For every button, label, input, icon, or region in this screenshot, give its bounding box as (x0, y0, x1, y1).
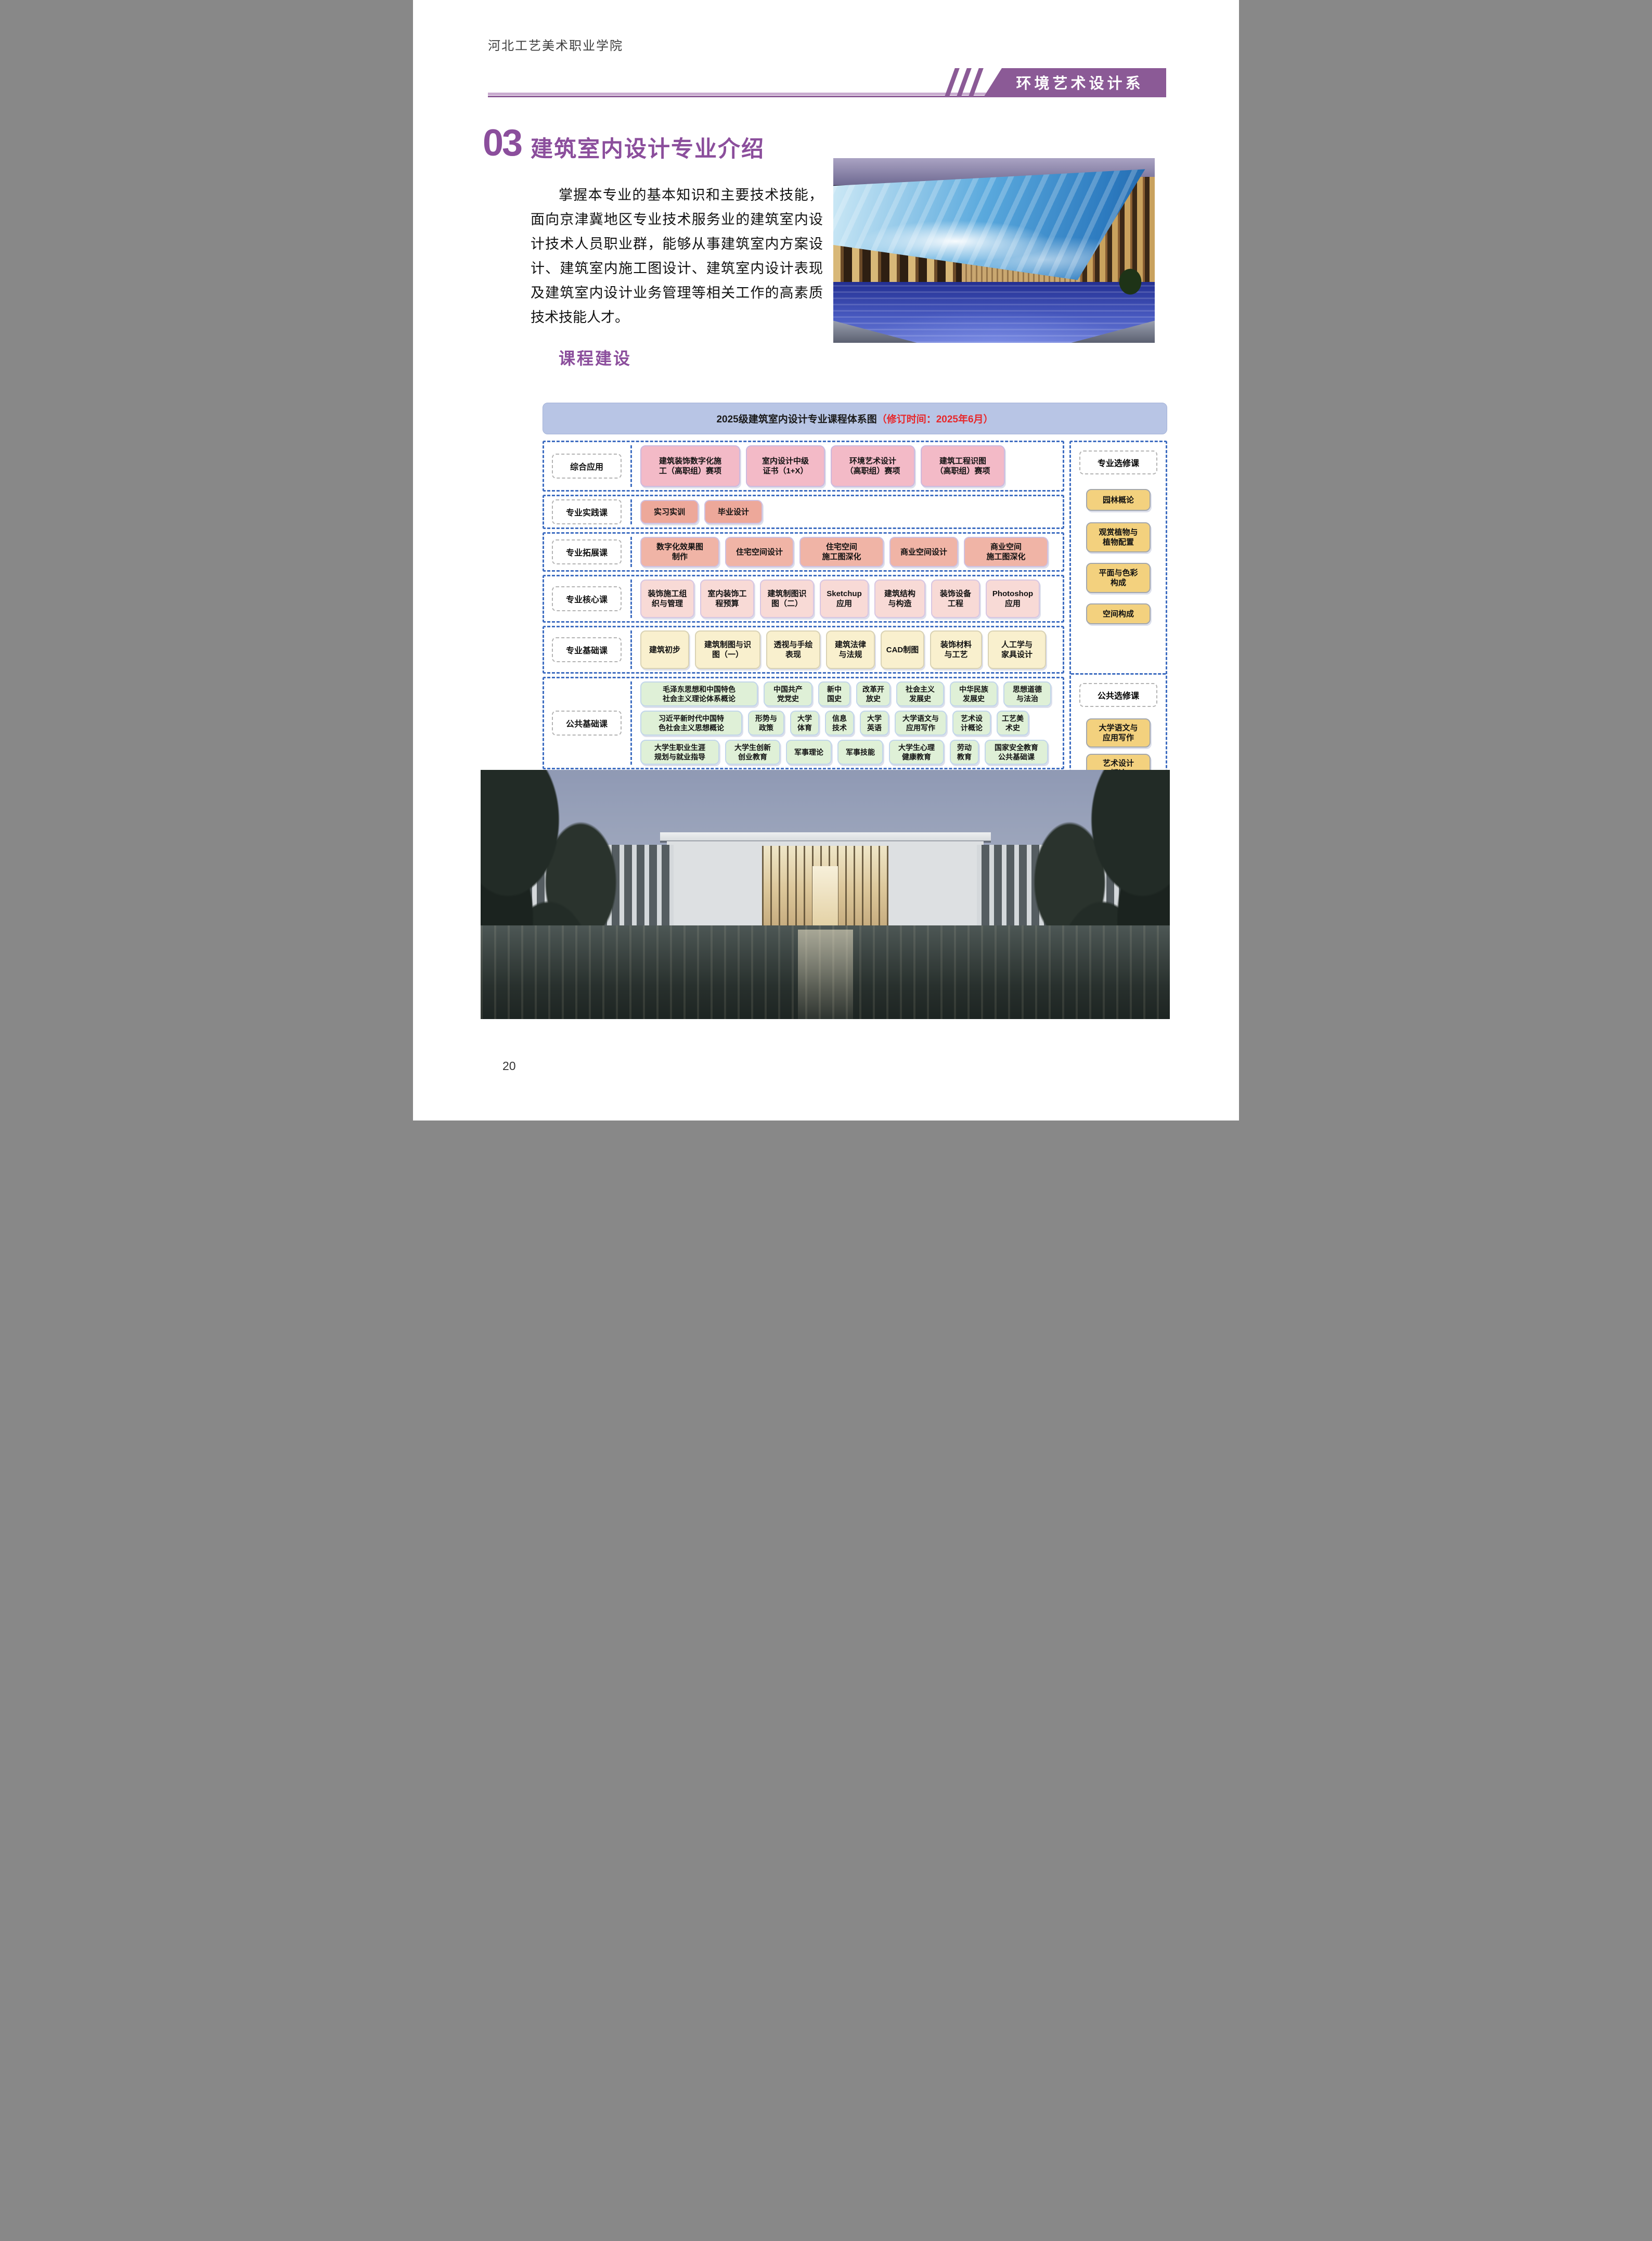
building-body (667, 841, 984, 926)
shrub (646, 913, 724, 944)
course-box: 社会主义 发展史 (896, 681, 944, 706)
banner-stripe-icon (969, 68, 984, 96)
course-box: 商业空间 施工图深化 (964, 537, 1048, 567)
course-box: 大学语文与 应用写作 (895, 711, 947, 736)
course-box: 装饰设备 工程 (931, 579, 980, 618)
course-box: 建筑制图与识 图（一） (695, 630, 760, 669)
course-box: 平面与色彩 构成 (1086, 563, 1151, 593)
building-roof (660, 832, 991, 841)
course-box: 中华民族 发展史 (950, 681, 998, 706)
public-courses-subrow: 大学生职业生涯 规划与就业指导 大学生创新 创业教育 军事理论 军事技能 大学生… (640, 740, 1059, 765)
course-box: 装饰施工组 织与管理 (640, 579, 694, 618)
course-box: 大学生创新 创业教育 (725, 740, 780, 765)
course-box: 习近平新时代中国特 色社会主义思想概论 (640, 711, 742, 736)
diagram-title: 2025级建筑室内设计专业课程体系图 (716, 411, 876, 426)
school-name: 河北工艺美术职业学院 (488, 35, 623, 54)
row-label: 公共基础课 (552, 711, 622, 736)
course-box: 建筑初步 (640, 630, 689, 669)
course-box: 商业空间设计 (889, 537, 958, 567)
row-core-courses: 专业核心课 装饰施工组 织与管理 室内装饰工 程预算 建筑制图识 图（二） Sk… (543, 575, 1064, 623)
department-banner: 环境艺术设计系 (984, 68, 1166, 96)
course-system-diagram: 2025级建筑室内设计专业课程体系图（修订时间：2025年6月） 综合应用 建筑… (543, 403, 1167, 810)
row-label-cell: 专业基础课 (548, 630, 632, 669)
row-label-cell: 专业核心课 (548, 579, 632, 618)
course-box: 思想道德 与法治 (1003, 681, 1051, 706)
course-box: 建筑制图识 图（二） (760, 579, 814, 618)
course-box: 大学生心理 健康教育 (889, 740, 944, 765)
row-boxes: 毛泽东思想和中国特色 社会主义理论体系概论 中国共产 党党史 新中 国史 改革开… (632, 681, 1059, 765)
course-box: 室内设计中级 证书（1+X） (746, 445, 825, 487)
course-box: 空间构成 (1086, 603, 1151, 624)
course-box: 室内装饰工 程预算 (700, 579, 754, 618)
course-box: 大学语文与 应用写作 (1086, 718, 1151, 748)
group-label: 公共选修课 (1079, 683, 1157, 707)
course-box: 军事理论 (786, 740, 832, 765)
row-label: 专业拓展课 (552, 539, 622, 564)
course-box: 住宅空间设计 (725, 537, 794, 567)
course-box: 园林概论 (1086, 489, 1151, 511)
course-box: 实习实训 (640, 500, 699, 524)
group-label: 专业选修课 (1079, 450, 1157, 474)
row-label: 专业核心课 (552, 586, 622, 611)
course-box: 人工学与 家具设计 (988, 630, 1046, 669)
banner-stripe-icon (957, 68, 972, 96)
course-box: 建筑法律 与法规 (826, 630, 875, 669)
shrub (908, 916, 1007, 947)
entrance-reflection (798, 930, 853, 1019)
course-box: 中国共产 党党史 (764, 681, 812, 706)
shrub (1018, 916, 1133, 952)
row-comprehensive-application: 综合应用 建筑装饰数字化施 工（高职组）赛项 室内设计中级 证书（1+X） 环境… (543, 441, 1064, 492)
row-basic-courses: 专业基础课 建筑初步 建筑制图与识 图（一） 透视与手绘 表现 建筑法律 与法规… (543, 626, 1064, 674)
building-entrance (812, 866, 838, 925)
course-box: 信息 技术 (825, 711, 854, 736)
course-box: 毛泽东思想和中国特色 社会主义理论体系概论 (640, 681, 758, 706)
row-boxes: 建筑装饰数字化施 工（高职组）赛项 室内设计中级 证书（1+X） 环境艺术设计 … (632, 445, 1059, 487)
course-box: 建筑工程识图 （高职组）赛项 (921, 445, 1005, 487)
page-number: 20 (502, 1059, 516, 1073)
course-box: 军事技能 (837, 740, 883, 765)
brochure-page: 河北工艺美术职业学院 环境艺术设计系 03 建筑室内设计专业介绍 掌握本专业的基… (413, 0, 1239, 1120)
public-courses-subrow: 习近平新时代中国特 色社会主义思想概论 形势与 政策 大学 体育 信息 技术 大… (640, 711, 1059, 736)
course-box: 建筑装饰数字化施 工（高职组）赛项 (640, 445, 740, 487)
section-title: 建筑室内设计专业介绍 (531, 131, 765, 163)
row-label: 专业实践课 (552, 499, 622, 524)
row-practice-courses: 专业实践课 实习实训 毕业设计 (543, 495, 1064, 529)
course-box: CAD制图 (881, 630, 924, 669)
course-box: 建筑结构 与构造 (874, 579, 925, 618)
row-label: 综合应用 (552, 454, 622, 479)
section-number: 03 (483, 122, 521, 164)
subsection-title: 课程建设 (559, 345, 631, 369)
course-box: 工艺美 术史 (997, 711, 1029, 736)
course-box: Sketchup 应用 (820, 579, 869, 618)
course-box: 数字化效果图 制作 (640, 537, 719, 567)
major-electives-group: 专业选修课 园林概论 观赏植物与 植物配置 平面与色彩 构成 空间构成 (1071, 442, 1166, 673)
building-dusk-photo (481, 770, 1170, 1019)
course-box: 艺术设 计概论 (952, 711, 991, 736)
course-box: 观赏植物与 植物配置 (1086, 522, 1151, 552)
row-label-cell: 专业拓展课 (548, 537, 632, 567)
course-box: 毕业设计 (704, 500, 763, 524)
course-box: 形势与 政策 (748, 711, 784, 736)
pool-plant (1112, 265, 1148, 312)
course-box: 装饰材料 与工艺 (930, 630, 982, 669)
banner-stripe-icon (945, 68, 960, 96)
diagram-title-note: （修订时间：2025年6月） (877, 411, 993, 426)
course-box: Photoshop 应用 (986, 579, 1040, 618)
course-box: 改革开 放史 (856, 681, 890, 706)
course-box: 大学 英语 (860, 711, 889, 736)
course-box: 大学生职业生涯 规划与就业指导 (640, 740, 719, 765)
intro-paragraph: 掌握本专业的基本知识和主要技术技能，面向京津冀地区专业技术服务业的建筑室内设计技… (531, 183, 823, 330)
department-banner-label: 环境艺术设计系 (1006, 71, 1143, 93)
course-box: 住宅空间 施工图深化 (799, 537, 884, 567)
row-boxes: 建筑初步 建筑制图与识 图（一） 透视与手绘 表现 建筑法律 与法规 CAD制图… (632, 630, 1059, 669)
row-public-basic-courses: 公共基础课 毛泽东思想和中国特色 社会主义理论体系概论 中国共产 党党史 新中 … (543, 677, 1064, 769)
row-boxes: 数字化效果图 制作 住宅空间设计 住宅空间 施工图深化 商业空间设计 商业空间 … (632, 537, 1059, 567)
diagram-main-column: 综合应用 建筑装饰数字化施 工（高职组）赛项 室内设计中级 证书（1+X） 环境… (543, 441, 1064, 810)
row-boxes: 实习实训 毕业设计 (632, 499, 1059, 524)
indoor-pool-photo (833, 158, 1155, 343)
course-box: 环境艺术设计 （高职组）赛项 (831, 445, 915, 487)
row-label: 专业基础课 (552, 637, 622, 662)
row-label-cell: 公共基础课 (548, 681, 632, 765)
course-box: 劳动 教育 (950, 740, 979, 765)
row-boxes: 装饰施工组 织与管理 室内装饰工 程预算 建筑制图识 图（二） Sketchup… (632, 579, 1059, 618)
course-box: 新中 国史 (818, 681, 850, 706)
elective-courses-column: 专业选修课 园林概论 观赏植物与 植物配置 平面与色彩 构成 空间构成 公共选修… (1069, 441, 1167, 810)
course-box: 大学 体育 (790, 711, 819, 736)
public-courses-subrow: 毛泽东思想和中国特色 社会主义理论体系概论 中国共产 党党史 新中 国史 改革开… (640, 681, 1059, 706)
row-extension-courses: 专业拓展课 数字化效果图 制作 住宅空间设计 住宅空间 施工图深化 商业空间设计… (543, 532, 1064, 572)
diagram-title-band: 2025级建筑室内设计专业课程体系图（修订时间：2025年6月） (543, 403, 1167, 434)
row-label-cell: 专业实践课 (548, 499, 632, 524)
course-box: 国家安全教育 公共基础课 (985, 740, 1048, 765)
diagram-body: 综合应用 建筑装饰数字化施 工（高职组）赛项 室内设计中级 证书（1+X） 环境… (543, 441, 1167, 810)
row-label-cell: 综合应用 (548, 445, 632, 487)
course-box: 透视与手绘 表现 (766, 630, 820, 669)
